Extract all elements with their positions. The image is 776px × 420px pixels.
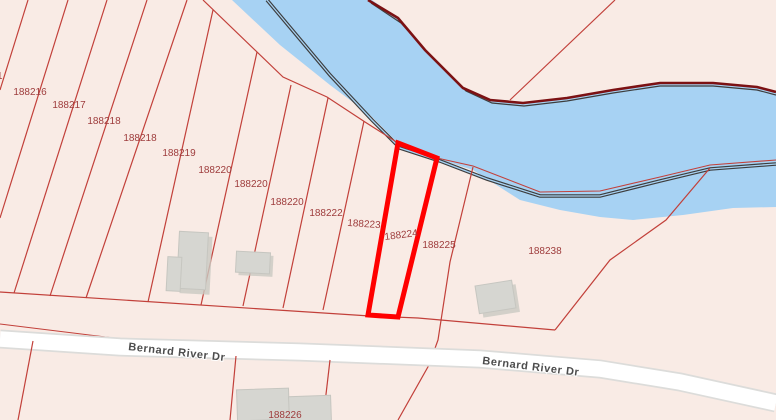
building-188238 [475, 280, 516, 313]
parcel-188225-east-boundary [398, 167, 473, 420]
parcel-label: 188238 [528, 246, 562, 257]
parcel-label: 188225 [422, 240, 456, 251]
parcel-label-highlighted: 188224 [384, 228, 419, 243]
topright-boundary-line [510, 0, 615, 100]
building-large-left-annex [166, 257, 182, 292]
parcel-label: 1 [0, 71, 3, 82]
road-bernard-river-dr [0, 339, 776, 403]
parcel-label: 188218 [87, 116, 121, 127]
road-surface [0, 339, 776, 403]
building-small-left [235, 251, 270, 274]
parcel-label: 188218 [123, 133, 157, 144]
parcel-map-canvas[interactable]: 1 188216 188217 188218 188218 188219 188… [0, 0, 776, 420]
parcel-bottom-boundary-line [0, 292, 555, 330]
parcel-label: 188217 [52, 100, 86, 111]
parcel-label: 188219 [162, 148, 196, 159]
parcel-label: 188220 [270, 197, 304, 208]
parcel-label: 188222 [309, 208, 343, 219]
parcel-label: 188226 [268, 410, 302, 420]
parcel-label: 188220 [198, 165, 232, 176]
parcel-label: 188216 [13, 87, 47, 98]
parcel-label: 188220 [234, 179, 268, 190]
building-footprints [166, 231, 520, 420]
parcel-label: 188223 [347, 218, 381, 231]
